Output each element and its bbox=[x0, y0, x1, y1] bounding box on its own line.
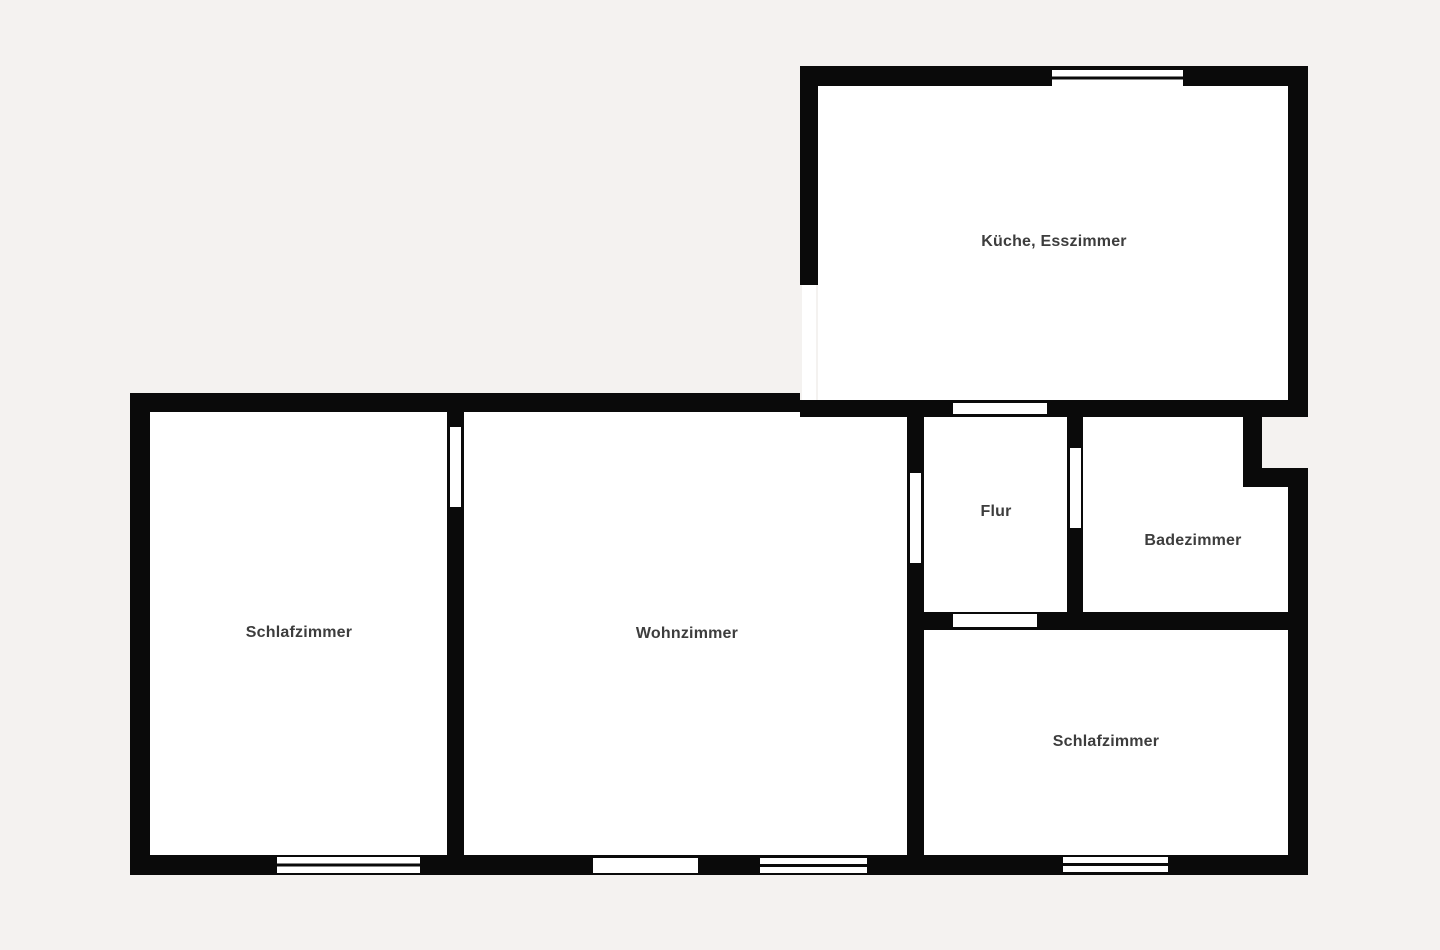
floor-plan: Küche, Esszimmer Schlafzimmer Wohnzimmer… bbox=[0, 0, 1440, 950]
room-label-bedroom-right: Schlafzimmer bbox=[1053, 733, 1159, 751]
window-living-bottom bbox=[760, 858, 867, 873]
room-label-hallway: Flur bbox=[980, 503, 1011, 521]
wall-kitchen-right bbox=[1288, 66, 1308, 417]
room-label-bedroom-left: Schlafzimmer bbox=[246, 624, 352, 642]
door-opening-bedroom-living bbox=[450, 427, 461, 507]
door-opening-hall-living bbox=[910, 473, 921, 563]
room-label-bathroom: Badezimmer bbox=[1144, 532, 1241, 550]
wall-notch-horizontal bbox=[1243, 468, 1308, 487]
wall-right-outer bbox=[1288, 487, 1308, 875]
room-bathroom-main bbox=[1083, 417, 1243, 612]
door-opening-hall-bathroom bbox=[1070, 448, 1081, 528]
door-opening-hall-bedroom bbox=[953, 614, 1037, 627]
room-bathroom-lower bbox=[1243, 487, 1288, 612]
wall-kitchen-bottom bbox=[800, 400, 1308, 417]
window-bedroom-right-bottom bbox=[1063, 857, 1168, 872]
window-bedroom-left-bottom bbox=[277, 857, 420, 873]
door-opening-kitchen-left bbox=[802, 285, 816, 400]
door-opening-living-bottom bbox=[593, 858, 698, 873]
wall-main-left bbox=[130, 393, 150, 875]
wall-main-top bbox=[130, 393, 800, 412]
room-label-living: Wohnzimmer bbox=[636, 625, 738, 643]
wall-kitchen-left bbox=[800, 66, 818, 285]
room-label-kitchen-dining: Küche, Esszimmer bbox=[981, 233, 1126, 251]
window-kitchen-top bbox=[1052, 70, 1183, 86]
door-opening-kitchen-hall bbox=[953, 403, 1047, 414]
